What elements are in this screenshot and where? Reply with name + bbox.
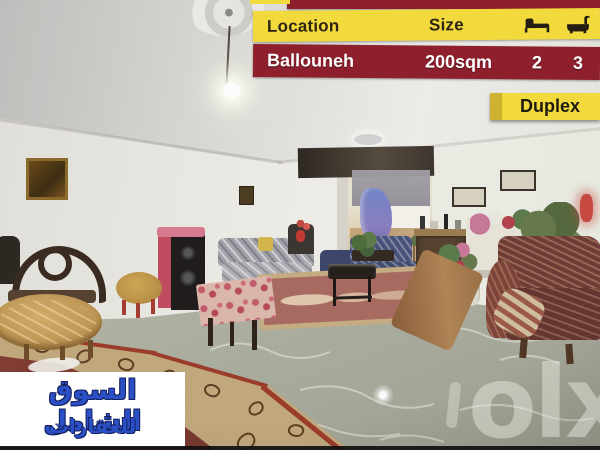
round-stool [122, 300, 126, 315]
pendant-light [223, 82, 240, 99]
speaker-cabinet [157, 227, 205, 237]
bathtub-icon [563, 8, 593, 39]
bottom-edge-strip [0, 446, 600, 450]
coffee-table [333, 278, 336, 306]
banner-top-sliver [250, 0, 290, 4]
ornament [444, 214, 448, 229]
property-type-badge: Duplex [490, 93, 600, 120]
antique-settee [38, 247, 72, 281]
speaker-cone [180, 270, 196, 286]
ornament [430, 221, 438, 229]
red-lamp [580, 194, 593, 222]
bed-icon [521, 8, 553, 39]
location-value: Ballouneh [267, 44, 354, 78]
cushion [258, 237, 273, 251]
banner-header-row: Location Size [253, 8, 600, 42]
size-value: 200sqm [425, 46, 492, 80]
wall-art [26, 158, 68, 200]
round-stool [136, 303, 140, 318]
round-stool [151, 299, 155, 314]
agency-logo-box: السوق الشامل للعقارات [0, 372, 185, 447]
location-label: Location [267, 10, 340, 42]
oval-wood-table [24, 344, 29, 360]
coffee-table-floral [230, 322, 234, 346]
console-cabinet [414, 229, 468, 236]
wall-art [500, 170, 536, 191]
wall-art [239, 186, 254, 205]
ornament [455, 220, 461, 230]
size-label: Size [429, 9, 464, 40]
listing-photo: Location Size Ballouneh 200sqm 2 3 Duple… [0, 0, 600, 450]
speaker-cone [181, 246, 195, 260]
oval-wood-table [60, 346, 65, 360]
wall-art [452, 187, 486, 207]
floor-glint [372, 384, 394, 406]
agency-subtitle: للعقارات [0, 414, 185, 438]
property-type-label: Duplex [510, 96, 580, 117]
flowers [296, 218, 311, 232]
baths-value: 3 [566, 47, 590, 80]
coffee-table-floral [252, 320, 257, 350]
banner-value-row: Ballouneh 200sqm 2 3 [253, 44, 600, 80]
oval-wood-table [88, 340, 93, 358]
ceiling-light [354, 134, 382, 145]
plant [348, 230, 380, 258]
coffee-table-floral [208, 318, 213, 346]
beds-value: 2 [524, 46, 550, 79]
ornament [420, 216, 425, 229]
site-watermark: olx [468, 358, 600, 450]
